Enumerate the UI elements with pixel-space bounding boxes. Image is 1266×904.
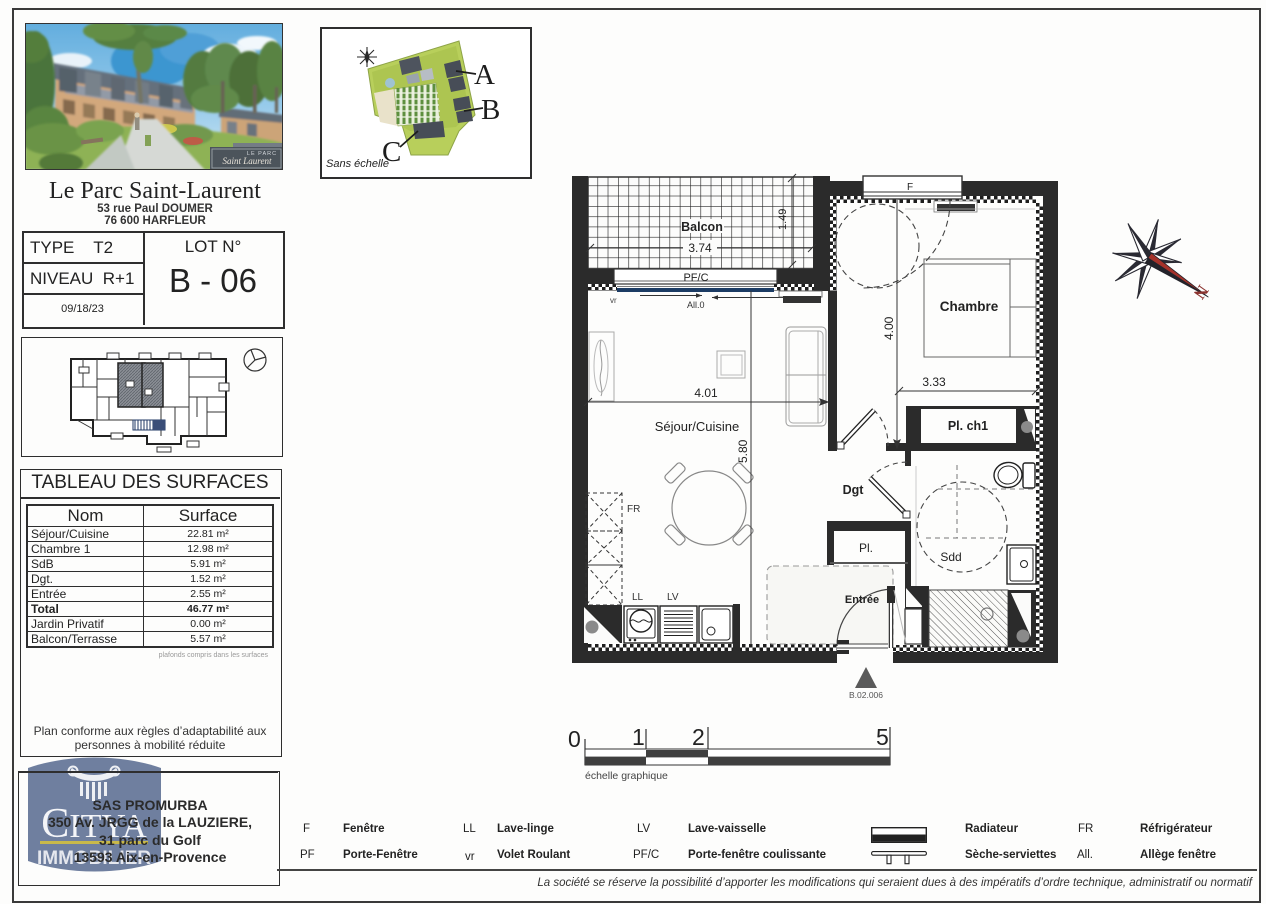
svg-text:LV: LV	[667, 592, 679, 603]
svg-text:B.02.006: B.02.006	[849, 690, 883, 700]
svg-text:Chambre: Chambre	[940, 299, 999, 314]
svg-text:1: 1	[632, 724, 645, 750]
svg-text:All.0: All.0	[687, 300, 705, 310]
svg-text:5.80: 5.80	[736, 439, 750, 463]
svg-text:Pl.: Pl.	[859, 541, 873, 555]
svg-text:FR: FR	[627, 504, 640, 515]
svg-text:1.49: 1.49	[777, 209, 789, 230]
svg-text:F: F	[907, 182, 913, 193]
svg-text:PF/C: PF/C	[683, 272, 708, 284]
svg-text:3.74: 3.74	[688, 241, 712, 255]
svg-text:Dgt: Dgt	[843, 483, 865, 497]
svg-text:Sdd: Sdd	[940, 550, 961, 564]
svg-text:B: B	[481, 94, 500, 126]
svg-text:3.33: 3.33	[922, 375, 946, 389]
svg-text:échelle graphique: échelle graphique	[585, 770, 668, 782]
svg-text:Pl. ch1: Pl. ch1	[948, 419, 988, 433]
svg-text:Séjour/Cuisine: Séjour/Cuisine	[655, 419, 740, 434]
svg-text:4.01: 4.01	[694, 386, 718, 400]
svg-text:0: 0	[568, 726, 581, 752]
svg-text:vr: vr	[610, 296, 617, 305]
svg-text:5: 5	[876, 724, 889, 750]
svg-text:A: A	[474, 59, 495, 91]
svg-text:LL: LL	[632, 592, 644, 603]
svg-text:2: 2	[692, 724, 705, 750]
svg-text:4.00: 4.00	[882, 316, 896, 340]
svg-text:Balcon: Balcon	[681, 220, 723, 234]
svg-text:Entrée: Entrée	[845, 594, 879, 606]
